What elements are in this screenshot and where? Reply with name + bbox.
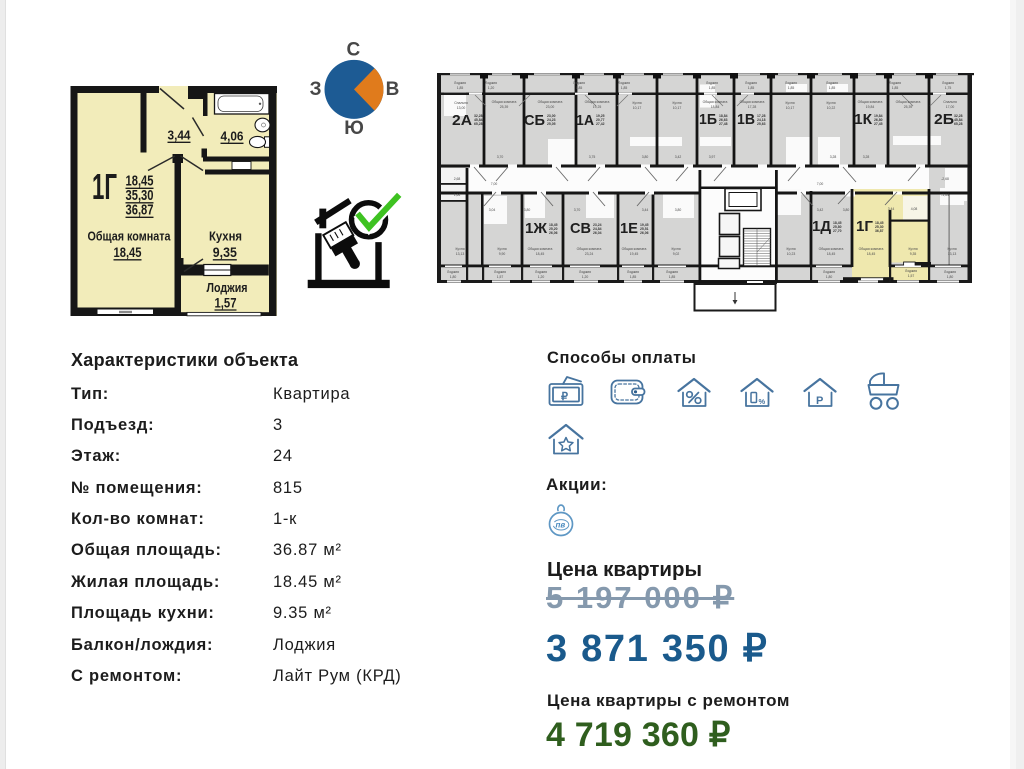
svg-text:3,70: 3,70 bbox=[574, 208, 581, 212]
svg-text:65,28: 65,28 bbox=[474, 122, 483, 126]
svg-text:СБ: СБ bbox=[524, 112, 545, 129]
svg-text:Лоджия: Лоджия bbox=[627, 270, 639, 274]
svg-text:1Д: 1Д bbox=[812, 218, 831, 235]
svg-text:Лоджия: Лоджия bbox=[454, 81, 466, 85]
svg-text:10,17: 10,17 bbox=[786, 106, 795, 110]
svg-text:Лоджия: Лоджия bbox=[207, 281, 248, 295]
svg-text:27,45: 27,45 bbox=[874, 122, 883, 126]
svg-text:25,05: 25,05 bbox=[547, 122, 556, 126]
svg-text:Кухня: Кухня bbox=[786, 247, 795, 251]
svg-text:7,00: 7,00 bbox=[491, 182, 498, 186]
svg-text:27,48: 27,48 bbox=[719, 122, 728, 126]
svg-text:С: С bbox=[347, 40, 361, 61]
svg-text:Ю: Ю bbox=[344, 118, 364, 139]
svg-text:1,85: 1,85 bbox=[669, 275, 676, 279]
svg-text:Спальня: Спальня bbox=[943, 100, 957, 104]
svg-text:3,44: 3,44 bbox=[888, 207, 895, 211]
svg-text:13,13: 13,13 bbox=[456, 252, 465, 256]
svg-text:Лоджия: Лоджия bbox=[666, 270, 678, 274]
svg-text:4,06: 4,06 bbox=[221, 129, 244, 144]
svg-text:3,80: 3,80 bbox=[843, 208, 850, 212]
svg-text:Лоджия: Лоджия bbox=[706, 81, 718, 85]
svg-text:2А: 2А bbox=[452, 112, 472, 129]
svg-text:1,85: 1,85 bbox=[748, 86, 755, 90]
svg-text:3,44: 3,44 bbox=[168, 128, 192, 143]
svg-text:18,84: 18,84 bbox=[711, 105, 720, 109]
svg-text:1,64: 1,64 bbox=[454, 193, 461, 197]
svg-text:1,57: 1,57 bbox=[215, 296, 237, 311]
svg-text:18,45: 18,45 bbox=[536, 252, 545, 256]
svg-text:3,04: 3,04 bbox=[489, 208, 496, 212]
svg-text:3,70: 3,70 bbox=[497, 155, 504, 159]
svg-text:1Б: 1Б bbox=[699, 111, 717, 128]
svg-text:3,80: 3,80 bbox=[642, 155, 649, 159]
svg-text:25,63: 25,63 bbox=[757, 122, 766, 126]
svg-text:1,80: 1,80 bbox=[450, 275, 457, 279]
svg-text:Кухня: Кухня bbox=[497, 247, 506, 251]
svg-text:Кухня: Кухня bbox=[785, 101, 794, 105]
svg-text:1,85: 1,85 bbox=[621, 86, 628, 90]
svg-text:10,17: 10,17 bbox=[673, 106, 682, 110]
svg-text:Общая комната: Общая комната bbox=[577, 247, 602, 251]
svg-text:7,00: 7,00 bbox=[817, 182, 824, 186]
svg-text:Кухня: Кухня bbox=[455, 247, 464, 251]
svg-text:%: % bbox=[759, 397, 766, 406]
svg-text:1,85: 1,85 bbox=[576, 86, 583, 90]
svg-text:18,45: 18,45 bbox=[114, 244, 142, 260]
svg-text:1В: 1В bbox=[737, 111, 755, 128]
svg-text:Кухня: Кухня bbox=[672, 101, 681, 105]
svg-text:36,87: 36,87 bbox=[126, 203, 154, 219]
svg-text:1,57: 1,57 bbox=[908, 274, 915, 278]
svg-text:36,87: 36,87 bbox=[875, 229, 884, 233]
svg-text:27,42: 27,42 bbox=[596, 122, 605, 126]
svg-text:9,02: 9,02 bbox=[673, 252, 680, 256]
svg-text:Общая комната: Общая комната bbox=[858, 100, 883, 104]
svg-text:25,39: 25,39 bbox=[500, 105, 509, 109]
svg-text:27,70: 27,70 bbox=[833, 229, 842, 233]
svg-text:1,85: 1,85 bbox=[829, 86, 836, 90]
svg-text:9,35: 9,35 bbox=[910, 252, 917, 256]
svg-text:Лоджия: Лоджия bbox=[889, 81, 901, 85]
svg-text:Лоджия: Лоджия bbox=[826, 81, 838, 85]
svg-text:19,25: 19,25 bbox=[593, 105, 602, 109]
svg-text:Лоджия: Лоджия bbox=[905, 269, 917, 273]
svg-text:Кухня: Кухня bbox=[908, 247, 917, 251]
svg-text:13,00: 13,00 bbox=[457, 106, 466, 110]
svg-text:Общая комната: Общая комната bbox=[740, 100, 765, 104]
svg-text:1,20: 1,20 bbox=[582, 275, 589, 279]
svg-text:Лоджия: Лоджия bbox=[745, 81, 757, 85]
svg-text:10,17: 10,17 bbox=[633, 106, 642, 110]
svg-text:пв: пв bbox=[556, 520, 566, 529]
svg-text:Лоджия: Лоджия bbox=[942, 81, 954, 85]
svg-text:2Б: 2Б bbox=[934, 111, 954, 128]
svg-text:19,84: 19,84 bbox=[866, 105, 875, 109]
svg-text:Лоджия: Лоджия bbox=[618, 81, 630, 85]
svg-text:3,80: 3,80 bbox=[675, 208, 682, 212]
svg-text:3,75: 3,75 bbox=[589, 155, 596, 159]
svg-text:Лоджия: Лоджия bbox=[535, 270, 547, 274]
svg-text:Лоджия: Лоджия bbox=[579, 270, 591, 274]
svg-text:1К: 1К bbox=[854, 111, 873, 128]
svg-text:3,44: 3,44 bbox=[642, 208, 649, 212]
svg-text:23,24: 23,24 bbox=[585, 252, 594, 256]
svg-text:-1,64: -1,64 bbox=[941, 193, 949, 197]
svg-text:Общая комната: Общая комната bbox=[585, 100, 610, 104]
svg-text:Р: Р bbox=[816, 395, 823, 407]
svg-text:9,90: 9,90 bbox=[499, 252, 506, 256]
svg-text:1,85: 1,85 bbox=[630, 275, 637, 279]
svg-text:10,22: 10,22 bbox=[827, 106, 836, 110]
svg-text:Общая комната: Общая комната bbox=[528, 247, 553, 251]
svg-text:18,45: 18,45 bbox=[867, 252, 876, 256]
svg-text:3,28: 3,28 bbox=[830, 155, 837, 159]
svg-text:1,85: 1,85 bbox=[788, 86, 795, 90]
svg-text:1,80: 1,80 bbox=[947, 275, 954, 279]
svg-text:1Г: 1Г bbox=[856, 218, 873, 235]
svg-text:1,75: 1,75 bbox=[945, 86, 952, 90]
svg-text:1,85: 1,85 bbox=[892, 86, 899, 90]
svg-text:1,85: 1,85 bbox=[709, 86, 716, 90]
svg-text:13,13: 13,13 bbox=[948, 252, 957, 256]
svg-text:2,68: 2,68 bbox=[454, 177, 461, 181]
svg-text:Кухня: Кухня bbox=[826, 101, 835, 105]
svg-text:Общая комната: Общая комната bbox=[819, 247, 844, 251]
svg-text:В: В bbox=[386, 79, 400, 100]
svg-text:Лоджия: Лоджия bbox=[573, 81, 585, 85]
svg-text:Общая комната: Общая комната bbox=[88, 229, 172, 244]
svg-text:3,42: 3,42 bbox=[817, 208, 824, 212]
svg-text:Лоджия: Лоджия bbox=[485, 81, 497, 85]
svg-text:Общая комната: Общая комната bbox=[859, 247, 884, 251]
svg-text:19,45: 19,45 bbox=[630, 252, 639, 256]
svg-text:Кухня: Кухня bbox=[947, 247, 956, 251]
svg-text:Кухня: Кухня bbox=[671, 247, 680, 251]
svg-text:26,06: 26,06 bbox=[549, 231, 558, 235]
svg-text:3,42: 3,42 bbox=[675, 155, 682, 159]
svg-text:23,00: 23,00 bbox=[546, 105, 555, 109]
svg-text:Кухня: Кухня bbox=[209, 229, 242, 244]
svg-text:25,39: 25,39 bbox=[904, 105, 913, 109]
svg-text:Кухня: Кухня bbox=[632, 101, 641, 105]
svg-text:Спальня: Спальня bbox=[454, 101, 468, 105]
svg-text:-2,68: -2,68 bbox=[941, 177, 949, 181]
svg-text:Общая комната: Общая комната bbox=[622, 247, 647, 251]
svg-text:Лоджия: Лоджия bbox=[785, 81, 797, 85]
svg-text:3,28: 3,28 bbox=[863, 155, 870, 159]
svg-text:9,35: 9,35 bbox=[213, 244, 237, 260]
svg-text:1А: 1А bbox=[576, 112, 594, 129]
svg-text:1Ж: 1Ж bbox=[525, 220, 547, 237]
svg-text:Общая комната: Общая комната bbox=[538, 100, 563, 104]
svg-text:1,85: 1,85 bbox=[457, 86, 464, 90]
svg-text:Лоджия: Лоджия bbox=[944, 270, 956, 274]
svg-text:18,45: 18,45 bbox=[827, 252, 836, 256]
svg-text:17,00: 17,00 bbox=[946, 105, 955, 109]
svg-text:10,23: 10,23 bbox=[787, 252, 796, 256]
svg-text:СВ: СВ bbox=[570, 220, 591, 237]
svg-text:Общая комната: Общая комната bbox=[703, 100, 728, 104]
svg-text:1Г: 1Г bbox=[92, 166, 117, 207]
svg-text:1Е: 1Е bbox=[620, 220, 638, 237]
svg-text:3,97: 3,97 bbox=[709, 155, 716, 159]
svg-text:1,57: 1,57 bbox=[497, 275, 504, 279]
svg-text:Лоджия: Лоджия bbox=[447, 270, 459, 274]
svg-text:Лоджия: Лоджия bbox=[494, 270, 506, 274]
svg-text:Лоджия: Лоджия bbox=[823, 270, 835, 274]
svg-text:65,28: 65,28 bbox=[954, 122, 963, 126]
svg-text:З: З bbox=[310, 79, 322, 100]
svg-text:1,20: 1,20 bbox=[538, 275, 545, 279]
svg-text:26,04: 26,04 bbox=[593, 231, 602, 235]
svg-text:17,28: 17,28 bbox=[748, 105, 757, 109]
svg-text:Общая комната: Общая комната bbox=[896, 100, 921, 104]
svg-text:₽: ₽ bbox=[561, 391, 568, 403]
svg-text:26,06: 26,06 bbox=[640, 231, 649, 235]
svg-text:3,80: 3,80 bbox=[524, 208, 531, 212]
svg-text:4,08: 4,08 bbox=[911, 207, 918, 211]
svg-text:1,80: 1,80 bbox=[826, 275, 833, 279]
svg-text:Общая комната: Общая комната bbox=[492, 100, 517, 104]
svg-text:1,20: 1,20 bbox=[488, 86, 495, 90]
